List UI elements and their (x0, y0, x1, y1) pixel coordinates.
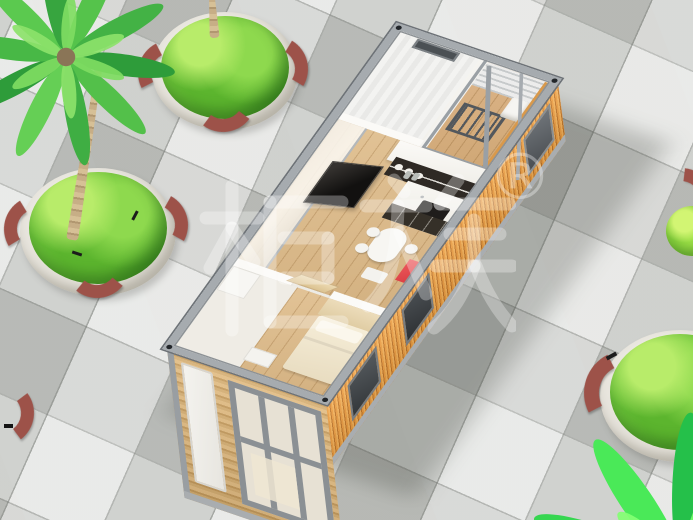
plaza-scene: ® 柜族 (0, 0, 693, 520)
bench-leg (4, 424, 13, 428)
corner-bolt (321, 397, 329, 403)
corner-bolt (395, 25, 403, 31)
palm-tree-canopy-top-left (0, 0, 184, 170)
corner-bolt (165, 344, 173, 350)
interior-seen-through-glass (251, 453, 300, 510)
corner-bolt (550, 78, 558, 84)
